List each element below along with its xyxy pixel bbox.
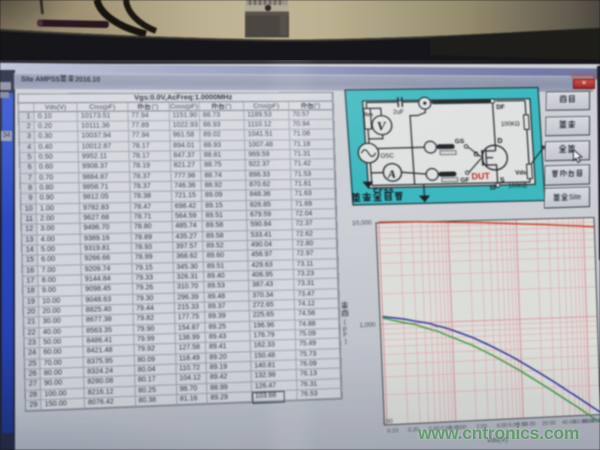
svg-text:0.10: 0.10 bbox=[387, 429, 398, 435]
svg-text:1,000: 1,000 bbox=[359, 322, 376, 329]
svg-text:(pF): (pF) bbox=[343, 319, 348, 345]
svg-text:100: 100 bbox=[382, 418, 393, 425]
